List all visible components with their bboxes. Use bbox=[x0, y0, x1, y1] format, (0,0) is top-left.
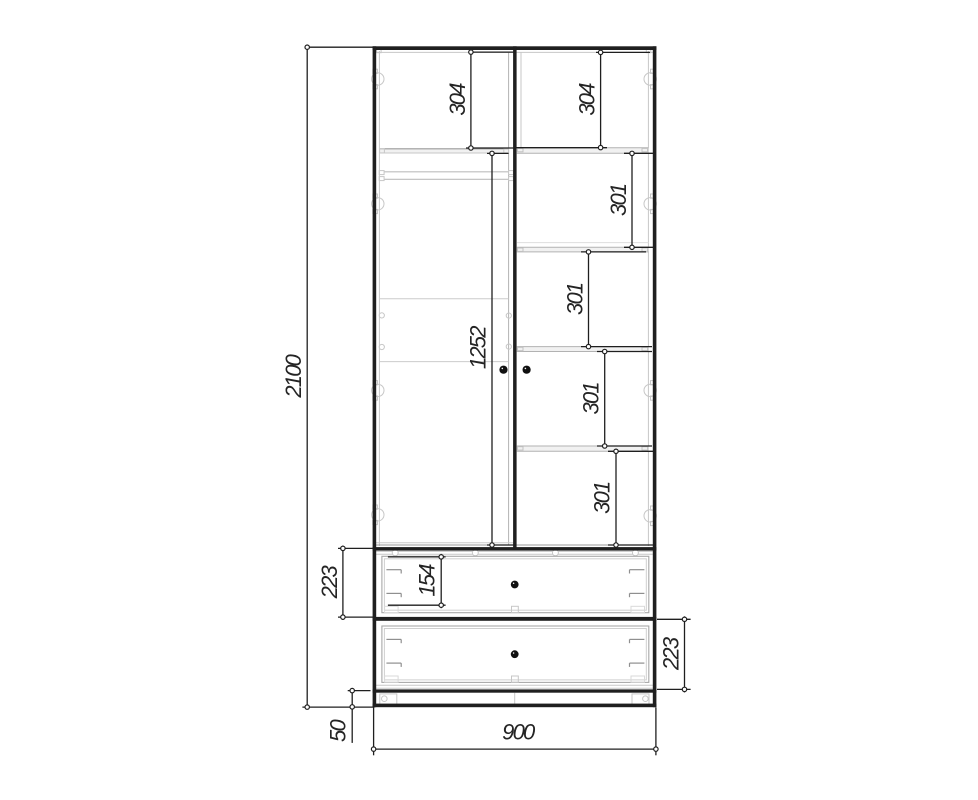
svg-text:301: 301 bbox=[562, 283, 587, 315]
svg-text:301: 301 bbox=[578, 383, 603, 415]
svg-text:301: 301 bbox=[590, 482, 615, 514]
svg-text:1252: 1252 bbox=[466, 326, 491, 369]
svg-text:900: 900 bbox=[502, 720, 536, 745]
svg-text:304: 304 bbox=[445, 83, 470, 116]
svg-text:50: 50 bbox=[325, 719, 350, 742]
svg-text:154: 154 bbox=[414, 564, 439, 597]
svg-text:2100: 2100 bbox=[281, 353, 306, 398]
svg-text:223: 223 bbox=[317, 564, 342, 599]
svg-text:304: 304 bbox=[574, 83, 599, 116]
svg-text:223: 223 bbox=[658, 636, 683, 671]
svg-text:301: 301 bbox=[606, 184, 631, 216]
